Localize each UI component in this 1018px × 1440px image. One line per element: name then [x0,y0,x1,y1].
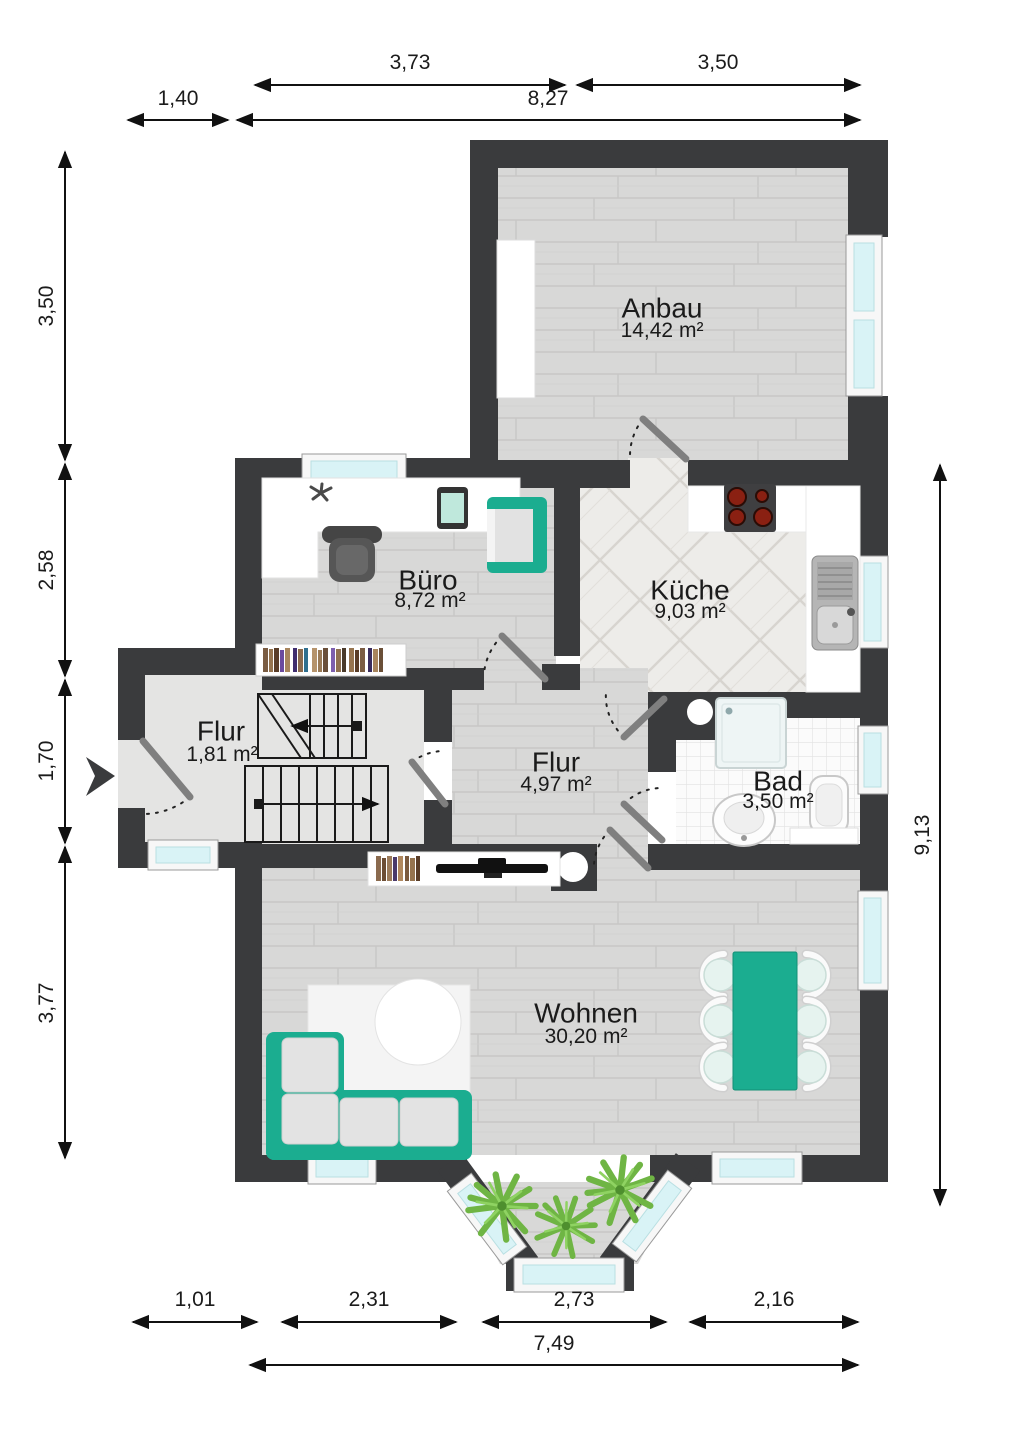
dimension-label: 1,70 [36,741,58,782]
window [712,1152,802,1184]
bookshelf [256,644,406,676]
dimension-label: 2,73 [554,1289,595,1311]
armchair [487,497,547,573]
washbasin [810,776,848,834]
dimension-label: 2,31 [349,1289,390,1311]
dimension-label: 1,40 [158,88,199,110]
window [858,891,888,990]
coffee-table [375,979,461,1065]
room-area-bad: 3,50 m² [742,791,813,813]
room-area-flur-klein: 1,81 m² [186,744,257,766]
dimension-label: 3,50 [698,52,739,74]
cooktop [724,484,776,532]
room-area-buero: 8,72 m² [394,590,465,612]
room-label-flur-klein: Flur [197,716,245,745]
room-area-wohnen: 30,20 m² [545,1026,628,1048]
dimension-label: 9,13 [912,815,934,856]
dining-table [733,952,797,1090]
tablet [437,487,468,529]
floor-plan-canvas: Anbau 14,42 m² Büro 8,72 m² Küche 9,03 m… [0,0,1018,1440]
floor-plan-drawing [0,0,1018,1440]
window [858,726,888,794]
kitchen-sink [812,556,858,650]
window [858,556,888,648]
duct-circle [687,699,713,725]
room-area-kueche: 9,03 m² [654,601,725,623]
tv-sideboard [368,852,560,886]
dimension-label: 8,27 [528,88,569,110]
dimension-label: 3,50 [36,286,58,327]
cabinet [497,240,535,398]
dimension-label: 2,58 [36,550,58,591]
books [376,856,420,881]
room-area-flur: 4,97 m² [520,774,591,796]
dimension-label: 1,01 [175,1289,216,1311]
dimension-label: 3,73 [390,52,431,74]
bath-shelf [790,828,858,844]
office-chair [322,526,382,582]
dimension-label: 3,77 [36,983,58,1024]
chimney-circle [558,852,588,882]
window [846,235,882,396]
dining-set [703,952,827,1090]
shower [716,698,786,768]
room-label-wohnen: Wohnen [534,998,638,1027]
dimension-label: 7,49 [534,1333,575,1355]
window [148,840,218,870]
room-area-anbau: 14,42 m² [621,320,704,342]
dimension-label: 2,16 [754,1289,795,1311]
entrance-arrow-icon [86,757,115,796]
window [514,1258,624,1292]
